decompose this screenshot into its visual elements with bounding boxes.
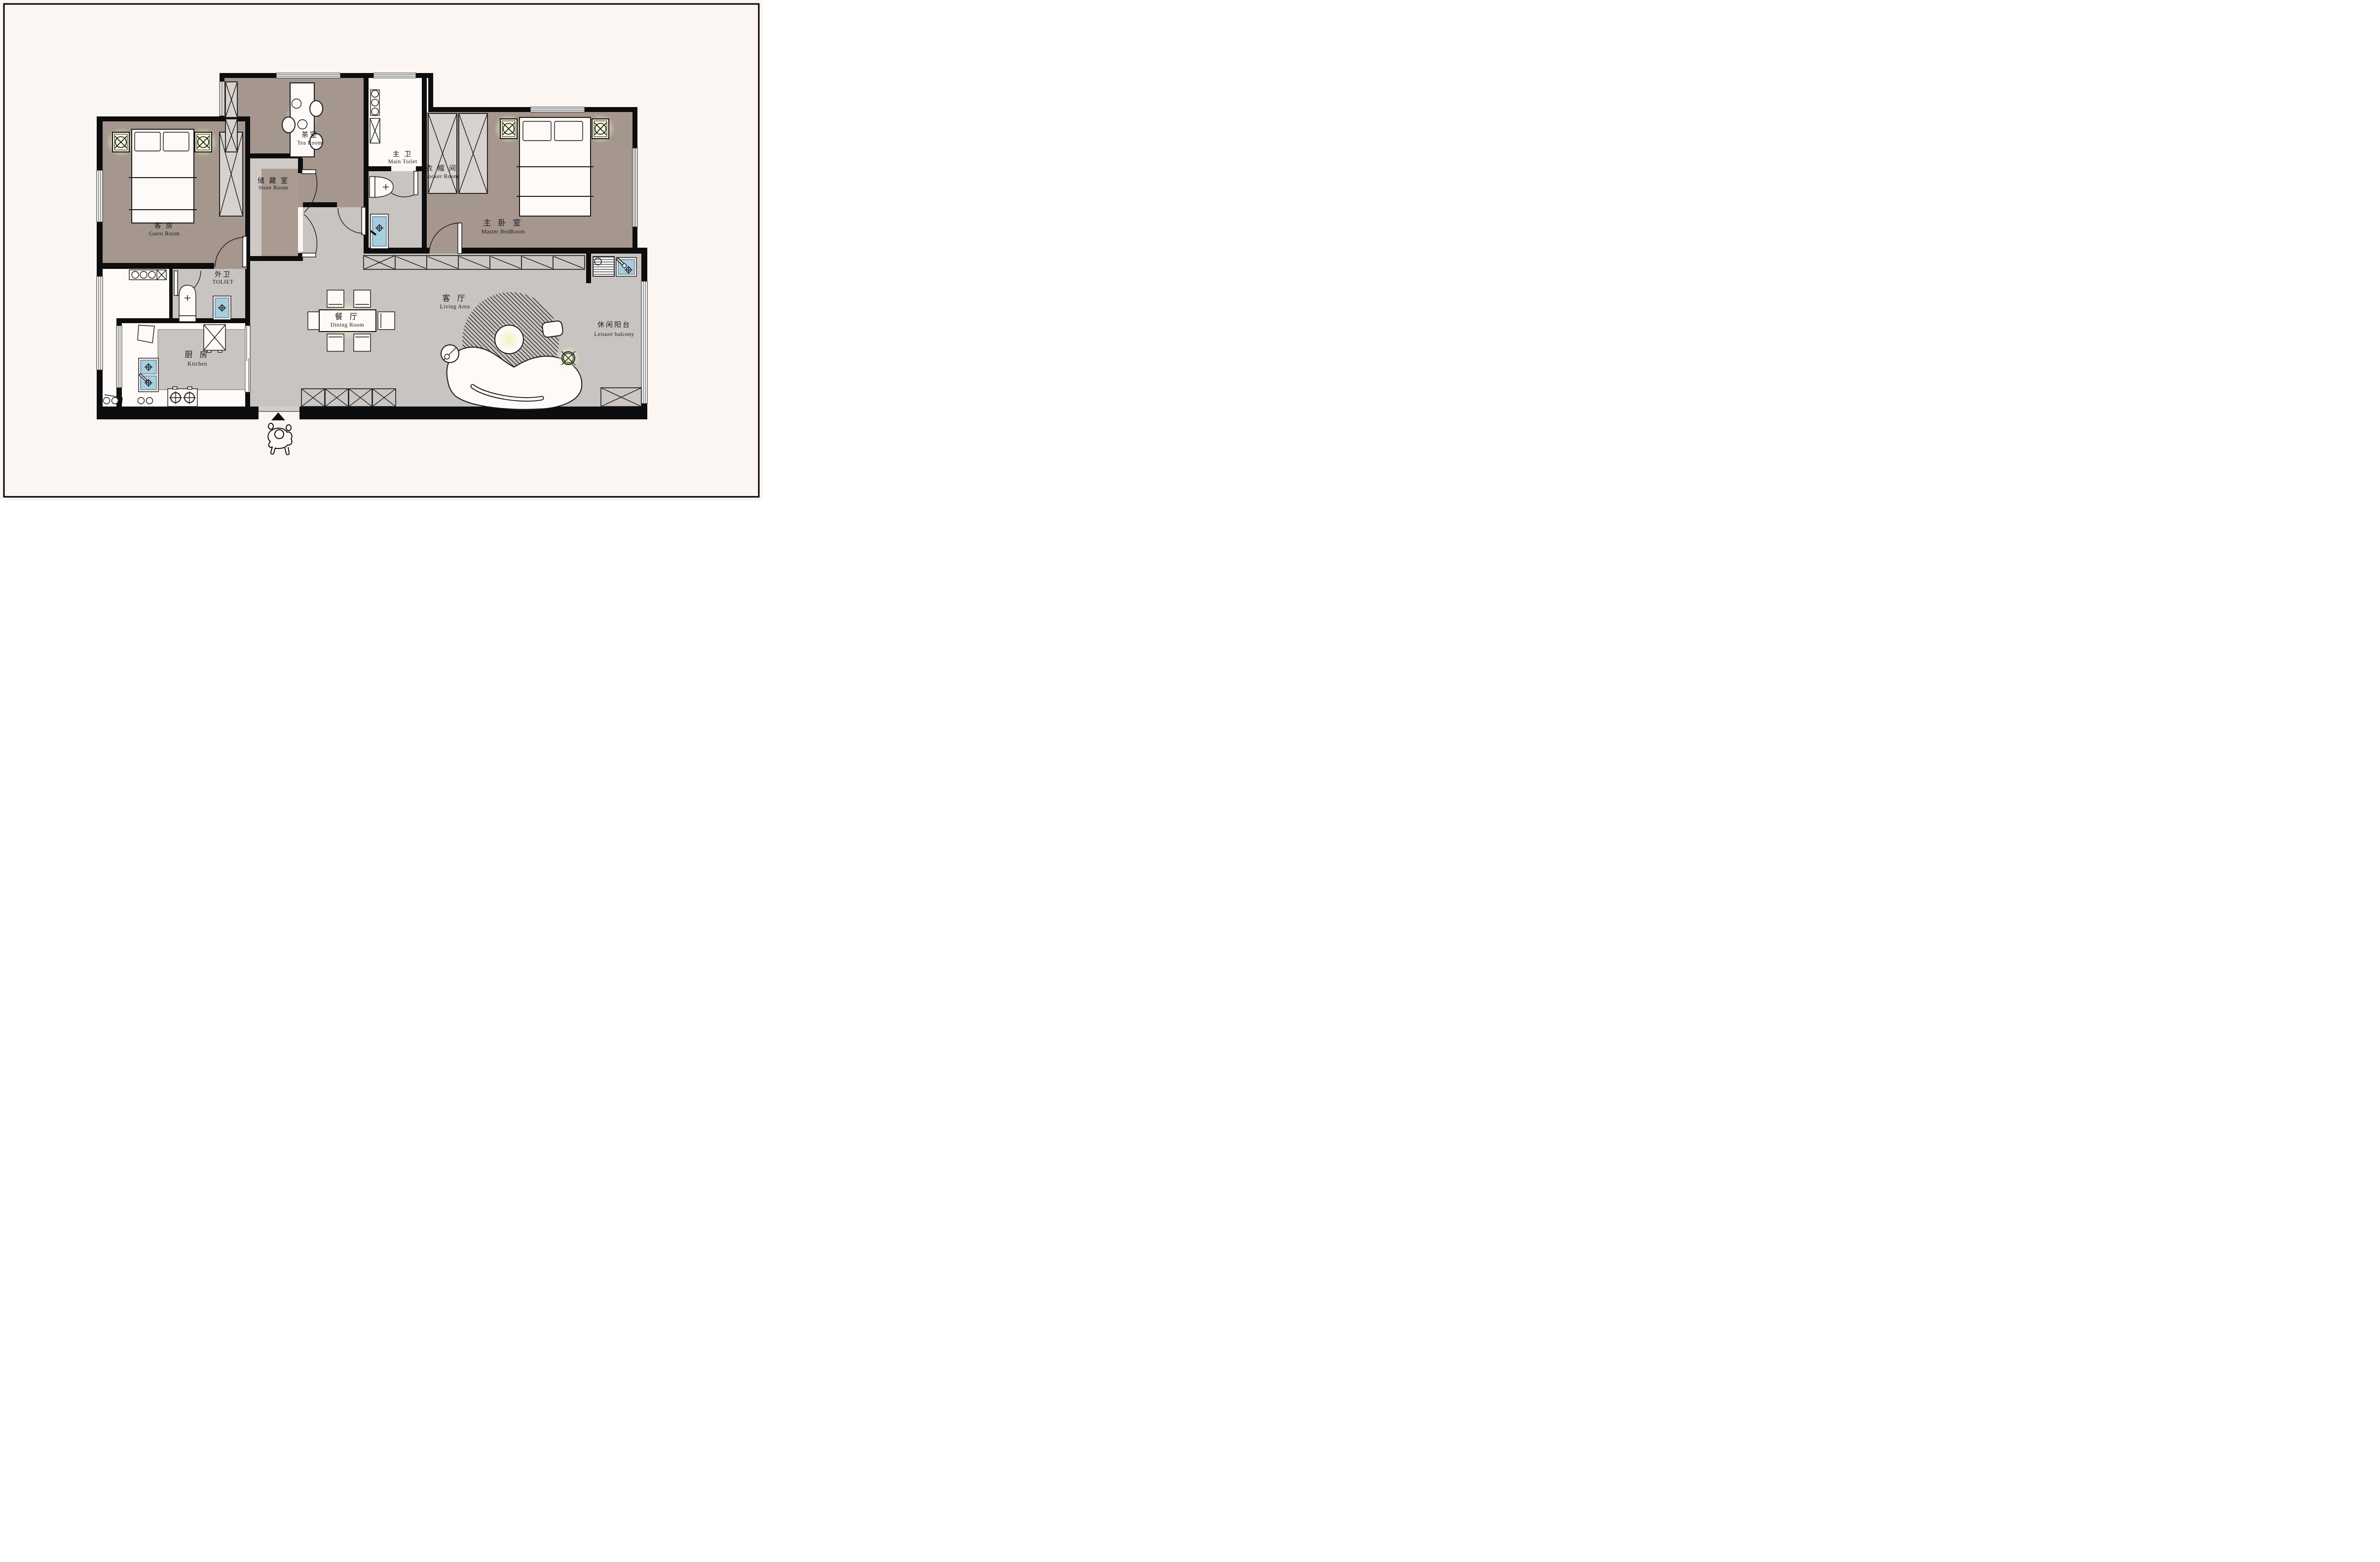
- master-bed: [517, 117, 594, 216]
- shoe-cabinet-row: [301, 389, 396, 407]
- fridge: [204, 325, 225, 352]
- hookup: [138, 398, 145, 404]
- service-window: [97, 276, 103, 370]
- master-bedroom-label: 主 卧 室: [483, 219, 523, 227]
- coffee-table-light: [499, 329, 520, 350]
- side-table: [542, 320, 563, 337]
- outer-toilet-label: 外卫: [215, 271, 231, 279]
- step-window: [220, 81, 224, 116]
- master-right-window: [632, 148, 637, 227]
- toilet-icon: [179, 285, 196, 322]
- tea-cabinet: [225, 82, 237, 152]
- vanity-sink: [213, 296, 231, 320]
- leisure-balcony-label: 休闲阳台: [597, 321, 631, 329]
- vanity-sink: [371, 214, 388, 249]
- small-cabinet: [370, 118, 380, 143]
- svg-text:Dining Room: Dining Room: [331, 322, 364, 328]
- svg-text:TOLIET: TOLIET: [212, 279, 233, 285]
- svg-text:Store Room: Store Room: [259, 185, 288, 191]
- store-room-label: 储 藏 室: [258, 177, 289, 185]
- kitchen-pass-window: [116, 326, 122, 388]
- master-top-window: [530, 107, 585, 112]
- floor-lamp-icon: [441, 345, 459, 363]
- stove: [168, 387, 197, 407]
- main-toilet-label: 主 卫: [393, 150, 413, 158]
- laundry-sink: [616, 258, 636, 276]
- svg-text:Tea Room: Tea Room: [297, 140, 322, 146]
- service-strip-floor: [103, 318, 116, 407]
- washing-machine: [593, 257, 614, 276]
- wall-light-icon: [557, 346, 580, 370]
- kitchen-sliding-door: [245, 326, 250, 392]
- guest-room-label: 客 房: [154, 222, 175, 230]
- dining-room-label: 餐 厅: [335, 312, 360, 321]
- hallway-floor: [303, 207, 364, 254]
- store-room-block: [250, 158, 298, 256]
- tea-cup: [292, 99, 301, 109]
- toilet-top-window: [373, 73, 416, 78]
- floor-plan-page: 客 房 Guest Room 茶室 Tea Room 储 藏 室 Store R…: [0, 0, 763, 501]
- svg-text:Kitchen: Kitchen: [187, 361, 207, 367]
- hookup: [104, 398, 110, 404]
- svg-text:Locker Room: Locker Room: [424, 174, 458, 180]
- guest-room-window: [97, 170, 103, 222]
- tea-chair: [310, 101, 323, 116]
- hookup: [147, 398, 153, 404]
- floor-plan-canvas: 客 房 Guest Room 茶室 Tea Room 储 藏 室 Store R…: [0, 0, 763, 501]
- threshold: [259, 407, 299, 411]
- tv-cabinet-row: [364, 256, 585, 269]
- shoe-cabinet-top: [129, 270, 166, 280]
- svg-text:Master BedRoom: Master BedRoom: [482, 229, 525, 235]
- tea-room-label: 茶室: [301, 131, 318, 139]
- balcony-cabinet: [601, 388, 641, 407]
- balcony-window: [641, 281, 647, 404]
- tea-room-window: [276, 73, 340, 78]
- kitchen-sink: [139, 358, 158, 392]
- svg-text:Guest Room: Guest Room: [149, 231, 180, 237]
- kitchen-counter: [158, 330, 245, 390]
- svg-text:Living Area: Living Area: [440, 304, 470, 310]
- hookup: [112, 398, 118, 404]
- bifold-door: [138, 325, 154, 343]
- guest-bed: [129, 129, 197, 223]
- tea-chair: [282, 117, 295, 133]
- tea-cup: [298, 120, 307, 129]
- living-area-label: 客 厅: [442, 294, 467, 303]
- kitchen-label: 厨 房: [185, 350, 210, 359]
- svg-text:Main Toilet: Main Toilet: [388, 159, 417, 165]
- svg-text:Leisure balcony: Leisure balcony: [594, 332, 634, 337]
- locker-room-label: 衣 帽 间: [426, 165, 457, 173]
